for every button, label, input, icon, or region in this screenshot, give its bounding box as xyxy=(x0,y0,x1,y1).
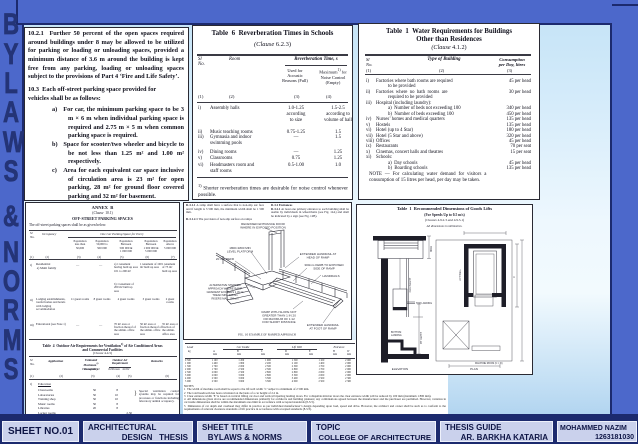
svg-text:MACHINE ROOM (C × D): MACHINE ROOM (C × D) xyxy=(475,362,503,365)
svg-text:SIDE OF RAMP: SIDE OF RAMP xyxy=(313,267,335,271)
svg-text:PLAN: PLAN xyxy=(470,367,478,371)
svg-text:MRH: MRH xyxy=(429,246,433,252)
svg-text:C: C xyxy=(513,276,516,278)
svg-text:ALTERNATIVE STEPPED: ALTERNATIVE STEPPED xyxy=(209,283,240,287)
svg-text:ELEVATION: ELEVATION xyxy=(392,367,408,371)
svg-text:TREAD MIN. 300mm: TREAD MIN. 300mm xyxy=(212,293,238,297)
svg-text:CAR HEIGHT: CAR HEIGHT xyxy=(409,277,412,292)
svg-text:APPROACH WHERE RAMP: APPROACH WHERE RAMP xyxy=(208,286,243,290)
svg-text:FIG. 10 EXAMPLE OF RAMPED APPR: FIG. 10 EXAMPLE OF RAMPED APPROACH xyxy=(238,333,296,337)
svg-text:RISERS MAX. 150mm: RISERS MAX. 150mm xyxy=(211,297,239,301)
svg-text:TOP LANDING: TOP LANDING xyxy=(416,302,432,305)
svg-text:LEVEL PLATFORM: LEVEL PLATFORM xyxy=(227,250,254,254)
svg-text:GRADIENT EXCEEDS 1 IN 12: GRADIENT EXCEEDS 1 IN 12 xyxy=(207,290,244,294)
svg-text:FOR SHORT DISTANCE: FOR SHORT DISTANCE xyxy=(262,320,295,324)
svg-text:AT FOOT OF RAMP: AT FOOT OF RAMP xyxy=(309,327,336,331)
svg-text:PIT DEPTH: PIT DEPTH xyxy=(420,332,423,345)
svg-text:LIFT WELL: LIFT WELL xyxy=(459,268,462,281)
svg-text:LANDING: LANDING xyxy=(391,334,402,337)
svg-text:20 mm REFR: 20 mm REFR xyxy=(216,257,235,261)
svg-text:HEAD OF RAMP: HEAD OF RAMP xyxy=(307,256,330,260)
svg-text:WHERE IN EXPOSED POSITION: WHERE IN EXPOSED POSITION xyxy=(240,226,286,230)
svg-text:HANDRAILS: HANDRAILS xyxy=(322,274,339,278)
